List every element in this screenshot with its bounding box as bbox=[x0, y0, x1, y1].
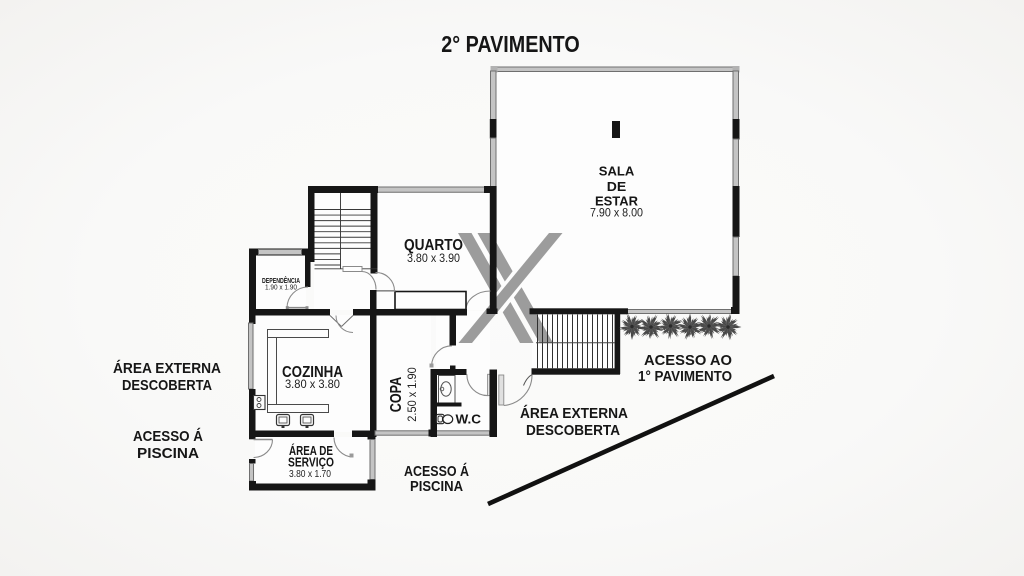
svg-text:DE: DE bbox=[607, 180, 627, 194]
svg-text:1.90 x 1.90: 1.90 x 1.90 bbox=[265, 283, 297, 292]
svg-text:ACESSO Á: ACESSO Á bbox=[133, 428, 203, 445]
svg-text:ÁREA EXTERNA: ÁREA EXTERNA bbox=[113, 360, 221, 377]
svg-text:7.90 x 8.00: 7.90 x 8.00 bbox=[590, 205, 643, 219]
svg-text:DESCOBERTA: DESCOBERTA bbox=[122, 377, 212, 394]
svg-text:3.80 x 3.80: 3.80 x 3.80 bbox=[285, 377, 340, 391]
svg-text:W.C: W.C bbox=[456, 412, 482, 427]
svg-text:ACESSO AO: ACESSO AO bbox=[644, 352, 732, 369]
svg-text:COPA: COPA bbox=[388, 377, 405, 413]
svg-text:SALA: SALA bbox=[599, 165, 635, 179]
svg-text:3.80 x 3.90: 3.80 x 3.90 bbox=[407, 251, 460, 265]
svg-text:1° PAVIMENTO: 1° PAVIMENTO bbox=[638, 368, 732, 385]
svg-text:PISCINA: PISCINA bbox=[137, 445, 199, 462]
svg-text:2° PAVIMENTO: 2° PAVIMENTO bbox=[441, 31, 580, 57]
svg-text:PISCINA: PISCINA bbox=[410, 478, 463, 495]
svg-text:DESCOBERTA: DESCOBERTA bbox=[526, 422, 620, 439]
svg-text:ÁREA EXTERNA: ÁREA EXTERNA bbox=[520, 405, 628, 422]
svg-text:2.50 x 1.90: 2.50 x 1.90 bbox=[405, 367, 419, 422]
svg-text:3.80 x 1.70: 3.80 x 1.70 bbox=[289, 468, 331, 480]
